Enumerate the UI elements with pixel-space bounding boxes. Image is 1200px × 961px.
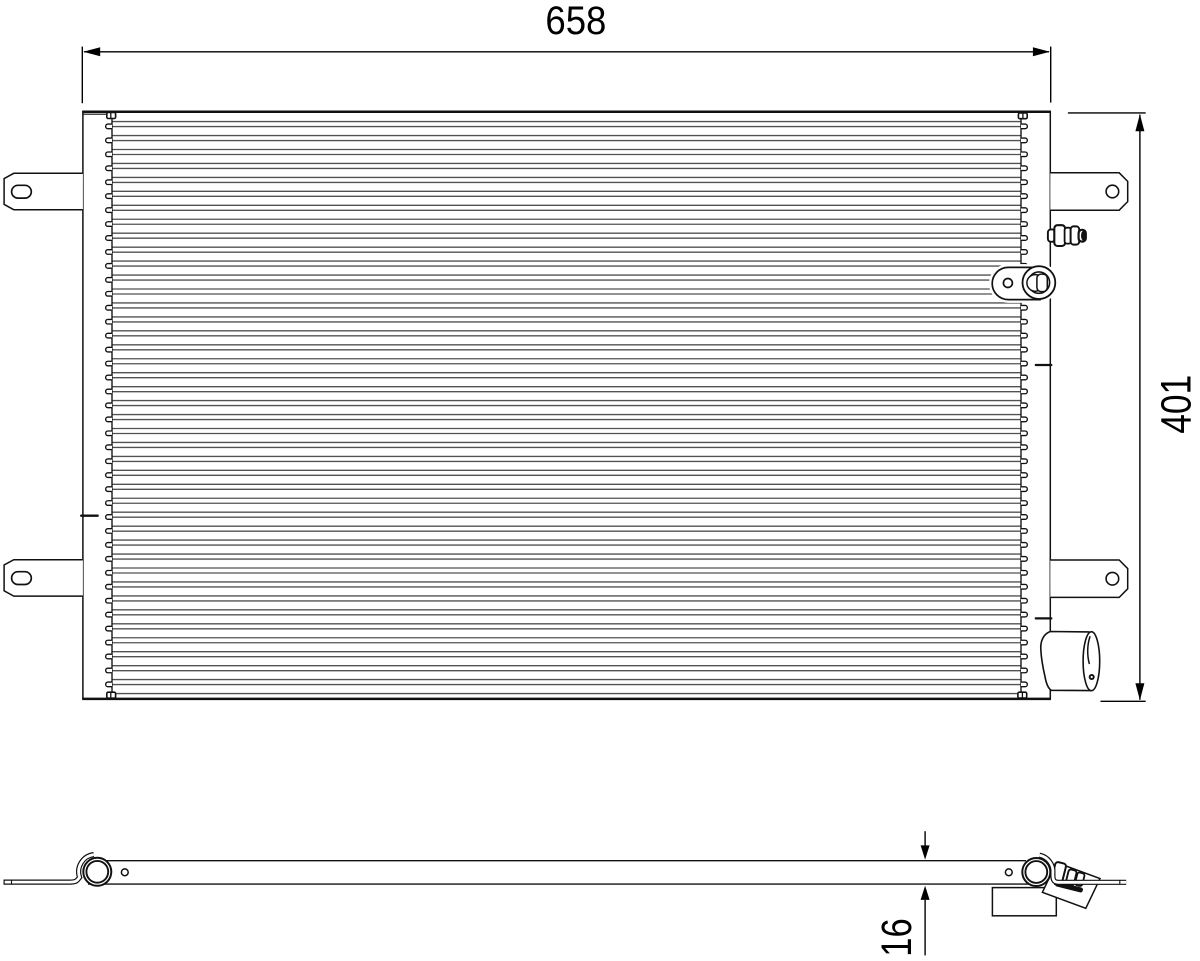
svg-text:401: 401 bbox=[1154, 375, 1200, 434]
svg-text:16: 16 bbox=[873, 918, 920, 957]
svg-text:658: 658 bbox=[545, 0, 606, 43]
